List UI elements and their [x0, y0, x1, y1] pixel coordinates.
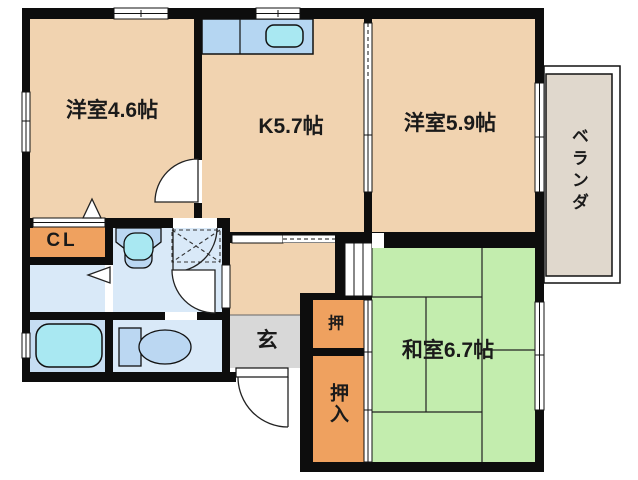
room-western2-floor	[372, 19, 535, 232]
closet-oshi-floor	[313, 300, 364, 348]
toilet	[119, 328, 191, 366]
hall-washitsu-slider	[345, 243, 372, 296]
door-washroom-hall	[222, 265, 230, 308]
kitchen-washitsu-opening	[372, 233, 384, 248]
washroom-corridor-floor	[30, 265, 105, 312]
floor-plan: 洋室4.6帖 K5.7帖 洋室5.9帖 和室6.7帖 ベランダ CL 玄 押 押…	[0, 0, 638, 480]
door-swing-entrance	[238, 377, 288, 427]
closet-oshiire-floor	[313, 356, 364, 462]
kitchen-counter	[202, 19, 313, 54]
hall-kitchen-slider	[232, 235, 283, 243]
veranda-floor	[546, 74, 612, 276]
floor-plan-drawing	[0, 0, 638, 480]
genkan-floor	[228, 315, 300, 368]
door-gap-toilet	[165, 312, 197, 320]
room-washitsu-floor	[372, 248, 535, 462]
closet-cl-floor	[30, 227, 105, 257]
entrance-threshold	[236, 368, 288, 377]
kitchen-sink	[266, 25, 303, 47]
door-gap-washroom	[173, 218, 217, 228]
bathtub	[36, 324, 102, 367]
